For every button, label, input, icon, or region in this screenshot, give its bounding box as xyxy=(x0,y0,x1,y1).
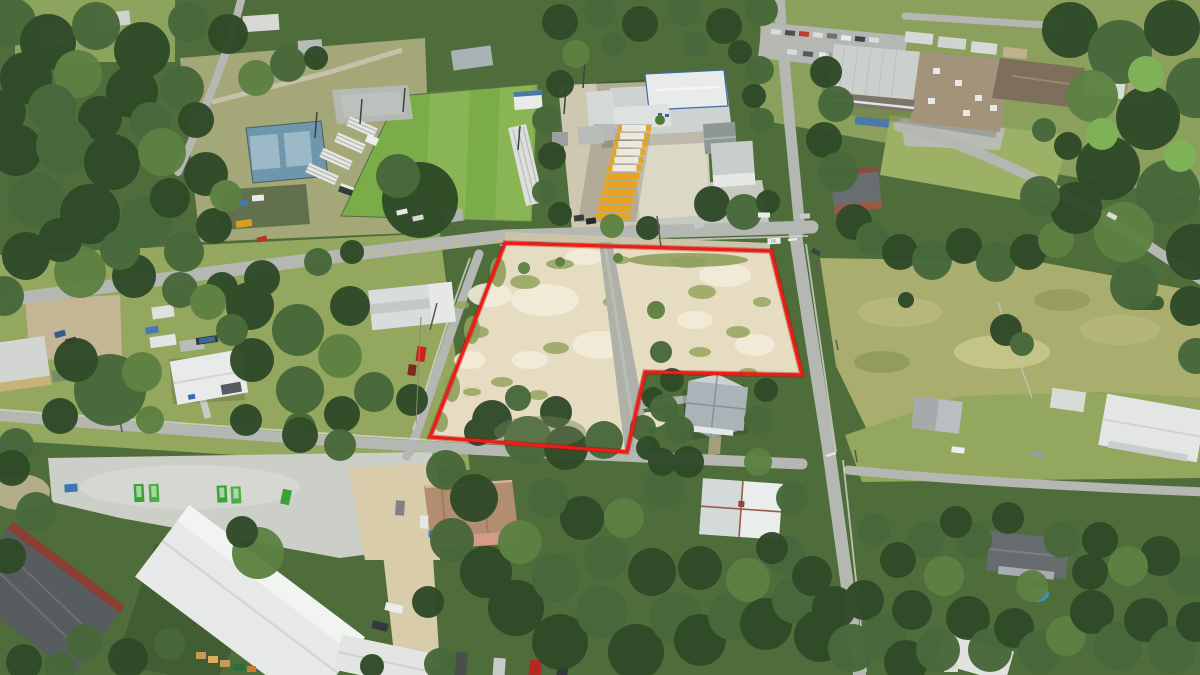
victorian-house xyxy=(699,478,783,539)
warehouse-driveway xyxy=(203,400,208,418)
white-suv xyxy=(767,238,780,245)
depot-office xyxy=(711,141,756,188)
press-box xyxy=(513,90,542,110)
far-left-house xyxy=(0,336,51,393)
palm-tree xyxy=(655,115,665,125)
aerial-photo-canvas xyxy=(0,0,1200,675)
blue-dumpster xyxy=(64,484,78,493)
aerial-photo xyxy=(0,0,1200,675)
